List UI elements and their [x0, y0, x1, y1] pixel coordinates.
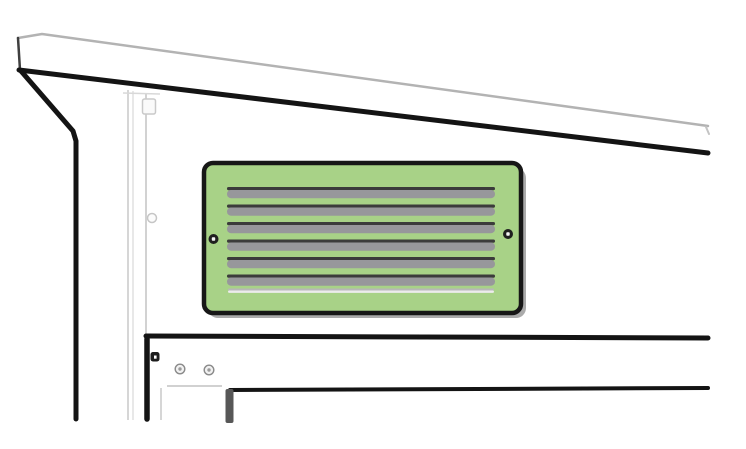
- louver-1-body: [227, 190, 495, 198]
- panel-screw-right-center: [506, 232, 509, 235]
- louver-4-body: [227, 243, 495, 251]
- doorframe-jamb: [226, 389, 234, 423]
- rail-screw-1-center: [178, 367, 181, 370]
- louver-6-body: [227, 278, 495, 286]
- post-bracket: [143, 99, 156, 114]
- rail-top-line: [146, 336, 708, 338]
- louver-7-thin-edge: [228, 289, 494, 291]
- louver-5-edge: [227, 257, 495, 260]
- louver-6-edge: [227, 275, 495, 278]
- fascia-right-end-tick: [706, 127, 709, 134]
- rail-screw-2-center: [207, 368, 210, 371]
- louver-3-edge: [227, 222, 495, 225]
- louver-7-thin-body: [228, 291, 494, 293]
- illustration-canvas: [0, 0, 746, 449]
- louver-2-edge: [227, 205, 495, 208]
- louver-3-body: [227, 225, 495, 233]
- louver-4-edge: [227, 240, 495, 243]
- fascia-left-edge-line: [18, 38, 20, 70]
- doorframe-top-line: [230, 388, 708, 390]
- corner-trim-line: [21, 71, 76, 419]
- post-cap-line: [123, 93, 160, 94]
- louver-2-body: [227, 208, 495, 216]
- post-screw: [148, 214, 157, 223]
- illustration: [0, 0, 746, 449]
- panel-screw-left-center: [212, 237, 215, 240]
- louver-5-body: [227, 260, 495, 268]
- louver-1-edge: [227, 187, 495, 190]
- rail-bolt-center: [154, 356, 157, 359]
